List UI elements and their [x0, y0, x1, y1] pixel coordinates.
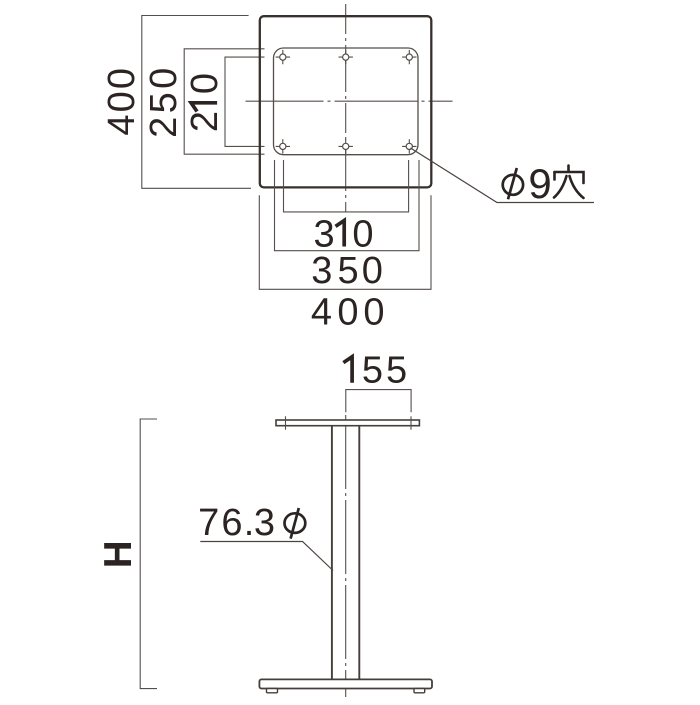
svg-text:6: 6	[221, 502, 242, 544]
svg-text:0: 0	[362, 250, 383, 292]
svg-text:5: 5	[143, 92, 185, 113]
svg-text:.: .	[244, 502, 255, 544]
svg-text:5: 5	[362, 350, 383, 392]
svg-text:0: 0	[101, 68, 143, 89]
svg-text:2: 2	[143, 117, 185, 138]
svg-text:4: 4	[101, 115, 143, 136]
svg-text:0: 0	[363, 292, 384, 334]
svg-text:0: 0	[101, 91, 143, 112]
svg-text:3: 3	[311, 250, 332, 292]
svg-text:H: H	[97, 540, 140, 568]
svg-text:3: 3	[314, 214, 335, 256]
svg-text:0: 0	[337, 292, 358, 334]
svg-text:5: 5	[386, 350, 407, 392]
svg-text:0: 0	[352, 214, 373, 256]
svg-text:5: 5	[338, 250, 359, 292]
svg-text:0: 0	[143, 68, 185, 89]
svg-text:7: 7	[198, 502, 219, 544]
svg-text:2: 2	[184, 111, 226, 132]
svg-text:9: 9	[528, 160, 551, 207]
svg-text:4: 4	[311, 292, 332, 334]
svg-text:0: 0	[184, 73, 226, 94]
svg-text:3: 3	[254, 502, 275, 544]
